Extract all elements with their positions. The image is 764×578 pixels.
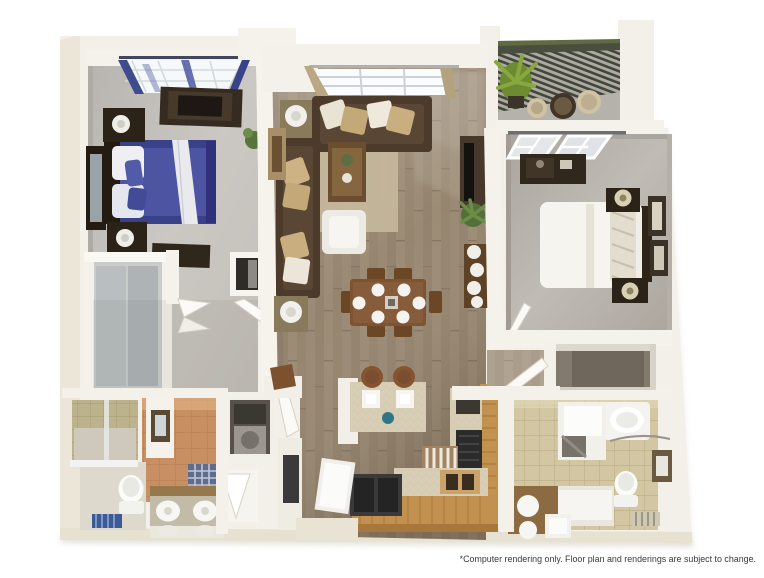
svg-text:*Computer rendering only. Floo: *Computer rendering only. Floor plan and… <box>460 554 756 564</box>
